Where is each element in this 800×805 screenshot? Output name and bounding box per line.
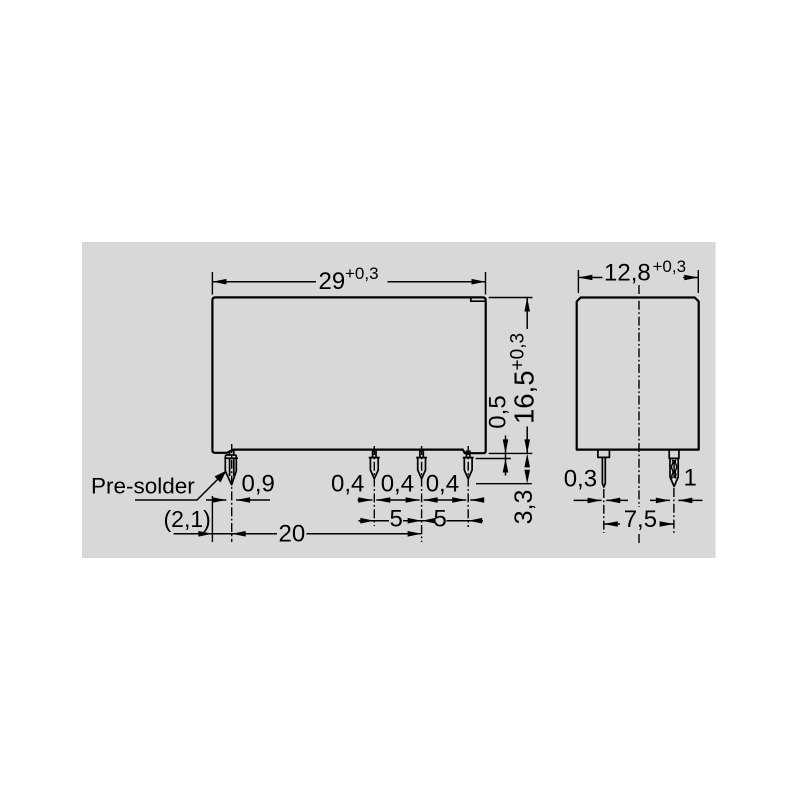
svg-text:0,4: 0,4 (381, 471, 414, 498)
svg-text:1: 1 (684, 465, 697, 492)
svg-text:0,3: 0,3 (564, 466, 597, 493)
svg-text:0,4: 0,4 (426, 471, 459, 498)
svg-text:+0,3: +0,3 (653, 257, 687, 276)
svg-text:20: 20 (279, 521, 306, 548)
svg-text:5: 5 (390, 505, 403, 532)
svg-text:Pre-solder: Pre-solder (91, 474, 195, 499)
svg-text:0,9: 0,9 (242, 471, 275, 498)
svg-text:0,5: 0,5 (485, 395, 512, 428)
svg-text:(2,1): (2,1) (164, 506, 211, 532)
svg-text:+0,3: +0,3 (345, 264, 379, 283)
svg-text:3,3: 3,3 (510, 490, 538, 525)
svg-text:29: 29 (319, 268, 346, 295)
svg-text:0,4: 0,4 (331, 471, 364, 498)
svg-text:12,8: 12,8 (604, 260, 651, 287)
svg-text:5: 5 (434, 505, 447, 532)
svg-text:7,5: 7,5 (624, 506, 657, 533)
